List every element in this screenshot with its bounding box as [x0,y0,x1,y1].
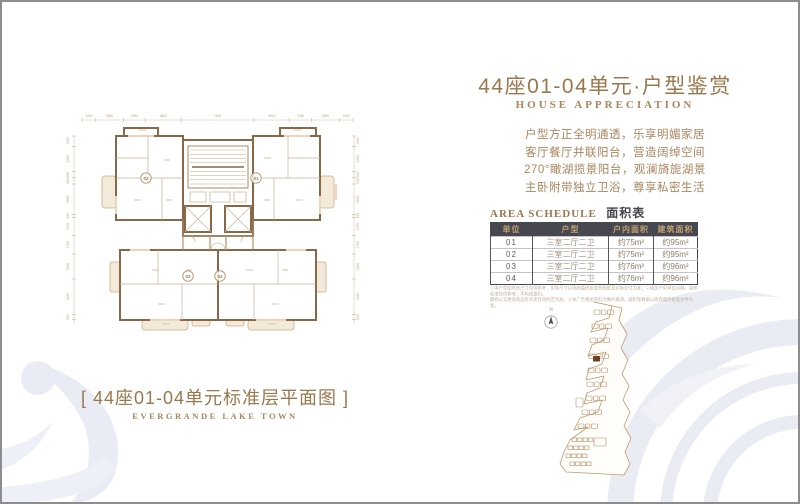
svg-text:2250: 2250 [297,114,305,118]
svg-text:2900: 2900 [66,195,70,203]
dims-left: 1000240060060029003001750175024003400500 [66,137,70,319]
table-row: 03 三室二厅二卫 约76m² 约96m² [491,261,698,273]
svg-text:2400: 2400 [356,263,360,271]
svg-text:2400: 2400 [66,155,70,163]
site-boundary [560,302,631,475]
description-line: 客厅餐厅并联阳台，营造阔绰空间 [445,145,785,163]
area-schedule-heading: AREA SCHEDULE 面积表 [490,204,645,222]
unit-label: 01 [253,176,259,181]
svg-text:2900: 2900 [356,195,360,203]
door-arcs [189,236,247,250]
svg-text:2800: 2800 [322,114,330,118]
col-header-type: 户型 [533,223,609,237]
cell-gross-area: 约95m² [654,237,698,249]
unit-label: 03 [185,274,191,279]
unit-label: 02 [143,176,149,181]
elevator-shaft-left [185,206,211,232]
area-schedule-table: 单位 户型 户内面积 建筑面积 01 三室二厅二卫 约75m² 约95m² 02… [490,222,698,285]
svg-text:600: 600 [356,178,360,184]
highlighted-building-44 [593,356,600,362]
svg-text:600: 600 [356,172,360,178]
svg-text:600: 600 [66,178,70,184]
svg-text:1750: 1750 [66,241,70,249]
cell-gross-area: 约95m² [654,249,698,261]
site-plan: N [536,298,662,484]
col-header-gross-area: 建筑面积 [654,223,698,237]
floor-plan-caption: [ 44座01-04单元标准层平面图 ] [60,384,370,410]
svg-text:7400: 7400 [214,114,222,118]
stair-core [188,146,248,202]
svg-text:2250: 2250 [131,114,139,118]
cell-unit: 03 [491,261,533,273]
svg-text:2400: 2400 [66,263,70,271]
svg-text:3400: 3400 [356,293,360,301]
unit-label: 04 [217,274,223,279]
table-header-row: 单位 户型 户内面积 建筑面积 [491,223,698,237]
elevator-shaft-right [225,206,251,232]
cell-inner-area: 约75m² [609,249,654,261]
page-title: 44座01-04单元·户型鉴赏 [440,70,770,100]
svg-text:300: 300 [66,213,70,219]
svg-text:1400: 1400 [85,114,93,118]
cell-unit: 02 [491,249,533,261]
table-row: 04 三室二厅二卫 约76m² 约96m² [491,273,698,285]
svg-text:600: 600 [66,172,70,178]
col-header-unit: 单位 [491,223,533,237]
cell-inner-area: 约75m² [609,237,654,249]
description-line: 270°瞰湖揽景阳台，观澜旖旎湖景 [445,162,785,180]
cell-type: 三室二厅二卫 [533,249,609,261]
svg-text:2400: 2400 [356,155,360,163]
svg-text:1750: 1750 [356,223,360,231]
description-line: 主卧附带独立卫浴，尊享私密生活 [445,180,785,198]
col-header-inner-area: 户内面积 [609,223,654,237]
north-compass-icon: N [545,308,557,328]
cell-type: 三室二厅二卫 [533,261,609,273]
svg-text:2800: 2800 [106,114,114,118]
area-schedule-title-en: AREA SCHEDULE [490,208,597,220]
cell-inner-area: 约76m² [609,273,654,285]
svg-text:300: 300 [356,213,360,219]
svg-text:3600: 3600 [268,114,276,118]
floor-plan-caption-en: EVERGRANDE LAKE TOWN [60,411,370,421]
floor-plan: 140028002250360074003600225028001400 100… [58,98,370,342]
svg-text:500: 500 [66,314,70,320]
cell-inner-area: 约76m² [609,261,654,273]
north-label: N [549,308,553,313]
site-plan-drawing: N [536,298,662,484]
svg-text:1400: 1400 [343,114,351,118]
table-row: 02 三室二厅二卫 约75m² 约95m² [491,249,698,261]
cell-unit: 04 [491,273,533,285]
table-row: 01 三室二厅二卫 约75m² 约95m² [491,237,698,249]
svg-text:1000: 1000 [66,137,70,145]
description: 户型方正全明通透，乐享明媚家居 客厅餐厅并联阳台，营造阔绰空间 270°瞰湖揽景… [445,127,785,197]
cell-gross-area: 约96m² [654,273,698,285]
page-subtitle: HOUSE APPRECIATION [440,99,770,111]
cell-type: 三室二厅二卫 [533,273,609,285]
svg-text:3600: 3600 [160,114,168,118]
floor-plan-drawing: 140028002250360074003600225028001400 100… [58,98,370,342]
description-line: 户型方正全明通透，乐享明媚家居 [445,127,785,145]
svg-text:500: 500 [356,314,360,320]
cell-gross-area: 约96m² [654,261,698,273]
svg-text:1750: 1750 [66,223,70,231]
dims-top: 140028002250360074003600225028001400 [85,114,350,118]
cell-type: 三室二厅二卫 [533,237,609,249]
dims-right: 1000240060060029003001750175024003400500 [356,137,360,319]
cell-unit: 01 [491,237,533,249]
svg-text:1750: 1750 [356,241,360,249]
disclaimer-line: ①本户型图所示尺寸仅供参考，实际尺寸以政府最终批准的图纸及实际交付为准；②相关户… [490,286,700,298]
svg-text:3400: 3400 [66,293,70,301]
svg-text:1000: 1000 [356,137,360,145]
area-schedule-title-cn: 面积表 [606,206,645,220]
